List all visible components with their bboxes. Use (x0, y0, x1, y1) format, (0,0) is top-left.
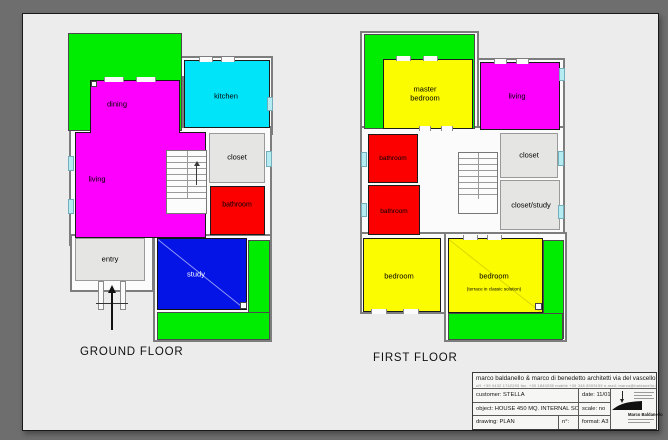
column-marker (91, 81, 97, 87)
window (559, 68, 565, 81)
room-master-bedroom (383, 59, 473, 129)
ceiling-slope-line (448, 239, 543, 313)
customer-cell: customer: STELLA (473, 389, 578, 403)
ceiling-slope-line (157, 239, 247, 310)
logo-fineprint (634, 398, 654, 399)
door-opening (403, 309, 419, 314)
logo-name: Marco Baldanello (628, 412, 663, 417)
window (267, 97, 273, 111)
contact-line: uff. +39 0432 1742293 fax. +39 1840035 m… (476, 384, 653, 388)
window (361, 152, 367, 167)
window (266, 151, 272, 167)
number-cell: n°: (558, 416, 578, 429)
door-opening (104, 77, 124, 82)
logo-fineprint (628, 419, 654, 420)
door-opening (494, 59, 507, 64)
window (68, 199, 74, 214)
scale-cell: scale: no (578, 403, 610, 416)
room-entry (75, 238, 145, 281)
staircase (458, 152, 498, 214)
ground-floor-label: GROUND FLOOR (80, 346, 184, 358)
garden-area (157, 312, 270, 340)
stair-direction-arrow (196, 165, 197, 185)
door-opening (136, 77, 156, 82)
door-opening (199, 57, 213, 62)
door-opening (221, 57, 235, 62)
drawing-cell: drawing: PLAN (473, 416, 558, 429)
first-floor-label: FIRST FLOOR (373, 352, 458, 364)
logo-wing-icon (612, 401, 642, 411)
door-opening (516, 59, 529, 64)
room-study (157, 238, 247, 310)
room-kitchen (184, 60, 270, 128)
room-bedroom-left (363, 238, 441, 312)
logo-fineprint (634, 392, 654, 393)
stair-divider (187, 151, 188, 199)
porch-wall (98, 281, 104, 310)
door-opening (441, 126, 453, 131)
room-closet (500, 133, 558, 178)
drawing-canvas: dininglivingkitchenclosetbathroomentryst… (0, 0, 668, 440)
door-opening (419, 126, 431, 131)
room-dining-living-join (91, 125, 179, 139)
column-marker (535, 303, 542, 310)
garden-area (448, 313, 563, 340)
date-cell: date: 11/01/11 (578, 389, 610, 403)
door-opening (463, 235, 478, 240)
logo-fineprint (628, 422, 650, 423)
window (361, 203, 367, 217)
format-cell: format: A3 (578, 416, 610, 429)
room-bathroom (210, 186, 265, 235)
porch-wall (120, 281, 126, 310)
door-opening (371, 309, 387, 314)
room-bathroom-upper (368, 134, 418, 183)
object-cell: object: HOUSE 450 MQ. INTERNAL SOLUTION (473, 403, 578, 416)
window (68, 156, 74, 171)
staircase (166, 150, 207, 214)
door-opening (396, 56, 411, 61)
room-sublabel-bedroom-right: (terrace in classic solution) (467, 287, 521, 292)
door-opening (423, 56, 438, 61)
logo-fineprint (634, 395, 652, 396)
room-living (480, 62, 560, 130)
stair-arrow-head (194, 161, 200, 166)
title-block: marco baldanello & marco di benedetto ar… (472, 372, 657, 430)
room-closet-study (500, 180, 560, 230)
stair-divider (478, 153, 479, 199)
door-opening (487, 235, 502, 240)
room-bathroom-lower (368, 185, 420, 235)
column-marker (240, 302, 247, 309)
window (558, 205, 564, 219)
room-bedroom-right (448, 238, 543, 313)
title-block-header: marco baldanello & marco di benedetto ar… (473, 373, 656, 389)
entry-arrow-head (108, 285, 116, 293)
entry-arrow-stem (111, 292, 113, 330)
architects-line: marco baldanello & marco di benedetto ar… (476, 375, 653, 382)
window (558, 151, 564, 166)
architect-logo: Marco Baldanello (610, 389, 656, 429)
room-closet (209, 133, 265, 183)
